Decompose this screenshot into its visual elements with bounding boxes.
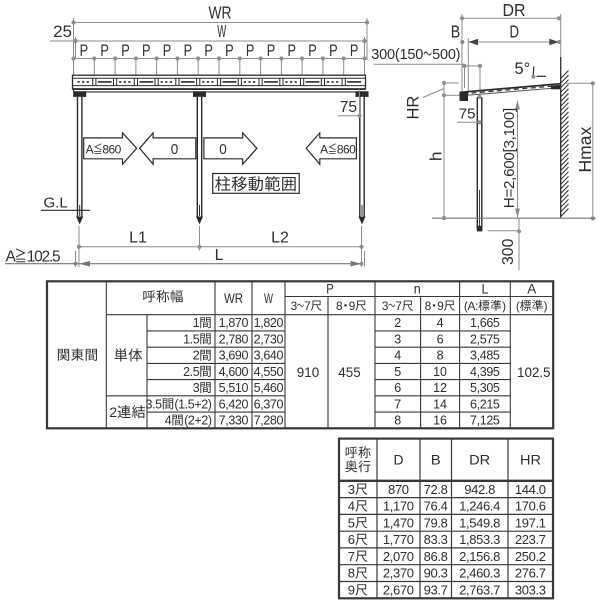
svg-text:83.3: 83.3 [424, 532, 448, 547]
svg-text:1,246.4: 1,246.4 [459, 499, 500, 514]
svg-text:3: 3 [348, 482, 355, 497]
svg-text:A: A [527, 282, 536, 297]
svg-text:Hmax: Hmax [575, 127, 595, 173]
svg-text:170.6: 170.6 [515, 499, 546, 514]
svg-text:W: W [264, 291, 273, 306]
svg-text:2,575: 2,575 [470, 332, 500, 346]
svg-text:P: P [225, 42, 234, 60]
svg-text:2,070: 2,070 [383, 549, 414, 564]
svg-text:12: 12 [433, 381, 447, 395]
svg-text:90.3: 90.3 [424, 566, 448, 581]
svg-text:P: P [267, 42, 276, 60]
svg-text:76.4: 76.4 [424, 499, 448, 514]
svg-text:102.5: 102.5 [517, 365, 551, 380]
svg-text:93.7: 93.7 [424, 583, 448, 598]
svg-text:300: 300 [500, 238, 517, 265]
svg-text:2,460.3: 2,460.3 [459, 566, 500, 581]
svg-text:n: n [414, 282, 421, 297]
svg-text:3,485: 3,485 [470, 349, 500, 363]
svg-text:(: ( [516, 299, 520, 313]
svg-text:8: 8 [394, 414, 401, 428]
svg-text:3,640: 3,640 [254, 349, 284, 363]
svg-text:L1: L1 [129, 230, 147, 247]
svg-text:1,770: 1,770 [383, 532, 414, 547]
svg-text:5,460: 5,460 [254, 381, 284, 395]
svg-text:7: 7 [394, 397, 401, 411]
svg-text:WR: WR [224, 291, 243, 306]
svg-text:72.8: 72.8 [424, 482, 448, 497]
svg-text:5: 5 [394, 365, 401, 379]
svg-text:2.5: 2.5 [183, 365, 200, 379]
svg-text:W: W [217, 21, 226, 41]
svg-text:86.8: 86.8 [424, 549, 448, 564]
svg-text:P: P [100, 42, 109, 60]
svg-text:7,125: 7,125 [470, 414, 500, 428]
svg-text:P: P [80, 42, 89, 60]
svg-text:4,395: 4,395 [470, 365, 500, 379]
svg-text:9: 9 [437, 299, 443, 313]
svg-text:2,156.8: 2,156.8 [459, 549, 500, 564]
svg-text:L: L [482, 282, 489, 297]
svg-text:8: 8 [336, 299, 343, 313]
svg-text:3: 3 [291, 299, 298, 313]
svg-text:2,370: 2,370 [383, 566, 414, 581]
svg-text:1,470: 1,470 [383, 515, 414, 530]
svg-text:9: 9 [349, 299, 355, 313]
svg-text:2,670: 2,670 [383, 583, 414, 598]
svg-text:D: D [510, 22, 520, 42]
svg-text:2,763.7: 2,763.7 [459, 583, 500, 598]
svg-text:6,420: 6,420 [219, 397, 249, 411]
svg-text:860: 860 [337, 143, 356, 157]
svg-text:250.2: 250.2 [515, 549, 546, 564]
svg-text:2: 2 [394, 316, 401, 330]
svg-text:P: P [288, 42, 297, 60]
svg-text:1,820: 1,820 [254, 316, 284, 330]
svg-text:8: 8 [348, 566, 355, 581]
svg-text:1: 1 [193, 316, 200, 330]
svg-text:1,853.3: 1,853.3 [459, 532, 500, 547]
svg-text:7: 7 [395, 299, 401, 313]
svg-text:942.8: 942.8 [464, 482, 495, 497]
svg-text:16: 16 [433, 414, 447, 428]
svg-text:870: 870 [388, 482, 409, 497]
svg-text:7: 7 [348, 549, 355, 564]
svg-text:860: 860 [102, 143, 121, 157]
svg-text:B: B [431, 452, 441, 467]
svg-text:P: P [163, 42, 172, 60]
svg-text:75: 75 [340, 99, 357, 116]
svg-text:75: 75 [459, 106, 476, 123]
svg-text:303.3: 303.3 [515, 583, 546, 598]
svg-text:6,370: 6,370 [254, 397, 284, 411]
svg-text:5,305: 5,305 [470, 381, 500, 395]
svg-text:455: 455 [338, 365, 360, 380]
svg-text:6: 6 [437, 332, 444, 346]
svg-text:P: P [142, 42, 151, 60]
svg-text:P: P [326, 282, 334, 297]
svg-text:0: 0 [171, 141, 179, 158]
svg-text:4,600: 4,600 [219, 365, 249, 379]
svg-text:144.0: 144.0 [515, 482, 546, 497]
svg-text:8: 8 [425, 299, 432, 313]
svg-text:5,510: 5,510 [219, 381, 249, 395]
svg-text:H=2,600[3,100]: H=2,600[3,100] [501, 108, 518, 208]
svg-text:910: 910 [297, 365, 319, 380]
svg-text:7,330: 7,330 [219, 414, 249, 428]
svg-text:): ) [544, 299, 548, 313]
svg-text:197.1: 197.1 [515, 515, 546, 530]
svg-text:(2+2): (2+2) [184, 414, 212, 428]
svg-text:276.7: 276.7 [515, 566, 546, 581]
svg-text:h: h [426, 152, 445, 161]
svg-text:G.L: G.L [44, 195, 68, 212]
svg-text:3,690: 3,690 [219, 349, 249, 363]
svg-text:6,215: 6,215 [470, 397, 500, 411]
svg-text:L2: L2 [271, 230, 289, 247]
svg-text:P: P [204, 42, 213, 60]
svg-text:79.8: 79.8 [424, 515, 448, 530]
svg-text:P: P [246, 42, 255, 60]
svg-text:7: 7 [304, 299, 310, 313]
svg-text:D: D [394, 452, 404, 467]
svg-text:P: P [308, 42, 317, 60]
svg-text:3: 3 [193, 381, 200, 395]
svg-text:1,870: 1,870 [219, 316, 249, 330]
svg-text:0: 0 [219, 141, 227, 158]
svg-text:4: 4 [437, 316, 444, 330]
svg-text:L: L [215, 247, 224, 264]
svg-text:2,780: 2,780 [219, 332, 249, 346]
svg-text:14: 14 [433, 397, 447, 411]
svg-text:A: A [320, 143, 328, 157]
svg-text:223.7: 223.7 [515, 532, 546, 547]
svg-text:4,550: 4,550 [254, 365, 284, 379]
svg-text:WR: WR [209, 3, 232, 23]
svg-text:4: 4 [394, 349, 401, 363]
svg-text:4: 4 [165, 414, 172, 428]
svg-text:9: 9 [348, 583, 355, 598]
svg-text:P: P [350, 42, 359, 60]
svg-text:P: P [184, 42, 193, 60]
svg-text:3.5: 3.5 [146, 397, 163, 411]
svg-text:A: A [86, 143, 94, 157]
svg-text:(1.5+2): (1.5+2) [174, 397, 211, 411]
svg-text:(A:: (A: [464, 299, 478, 313]
svg-text:): ) [502, 299, 506, 313]
svg-text:300(150: 300(150 [371, 47, 423, 63]
svg-text:HR: HR [405, 96, 423, 120]
svg-text:1.5: 1.5 [183, 332, 200, 346]
svg-text:2: 2 [109, 405, 117, 421]
svg-text:1,549.8: 1,549.8 [459, 515, 500, 530]
svg-text:6: 6 [394, 381, 401, 395]
svg-text:500): 500) [432, 47, 460, 63]
svg-text:1,665: 1,665 [470, 316, 500, 330]
svg-text:5°: 5° [515, 60, 531, 78]
svg-text:1,170: 1,170 [383, 499, 414, 514]
svg-text:DR: DR [503, 0, 526, 20]
svg-text:102.5: 102.5 [27, 249, 60, 266]
svg-text:8: 8 [437, 349, 444, 363]
svg-text:HR: HR [520, 452, 541, 467]
svg-text:3: 3 [394, 332, 401, 346]
svg-text:6: 6 [348, 532, 355, 547]
svg-text:2,730: 2,730 [254, 332, 284, 346]
svg-text:4: 4 [348, 499, 355, 514]
svg-text:2: 2 [193, 349, 200, 363]
svg-text:7,280: 7,280 [254, 414, 284, 428]
svg-text:B: B [451, 22, 461, 42]
svg-text:10: 10 [433, 365, 447, 379]
svg-text:P: P [329, 42, 338, 60]
svg-text:25: 25 [53, 22, 72, 41]
svg-text:5: 5 [348, 515, 355, 530]
svg-text:3: 3 [382, 299, 389, 313]
svg-text:DR: DR [469, 452, 490, 467]
svg-text:P: P [121, 42, 130, 60]
